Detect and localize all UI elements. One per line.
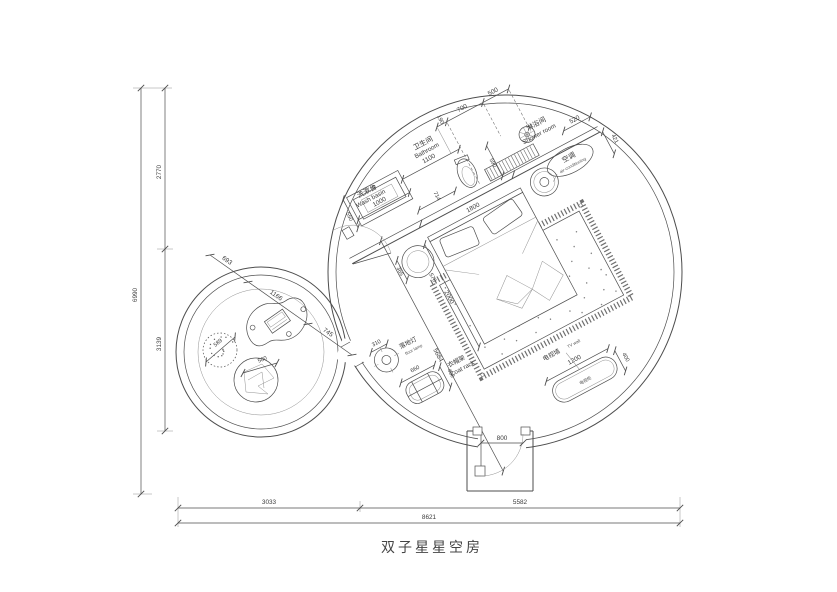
dim-3033: 3033 <box>262 499 277 506</box>
svg-text:800: 800 <box>497 435 508 442</box>
tv-label-cn: 电视墙 <box>541 347 561 363</box>
dim-714: 714 <box>412 182 459 215</box>
dim-3139: 3139 <box>156 336 163 351</box>
door-post <box>473 427 482 435</box>
dim-tv: 1200 400 电视墙 TV wall <box>532 320 635 411</box>
tv-label-en: TV wall <box>566 338 581 349</box>
coat-rack <box>403 369 447 407</box>
dim-590: 590 <box>480 142 507 182</box>
dim-693: 693 <box>220 255 233 267</box>
svg-text:5684: 5684 <box>431 347 444 363</box>
shower-glass-line <box>484 104 501 136</box>
dim-2770: 2770 <box>156 164 163 179</box>
dim-745: 745 <box>321 327 334 339</box>
main-room-interior: 空调 air-conditioning <box>284 46 732 504</box>
lounge-room-inner-wall <box>184 275 338 429</box>
drawing-title: 双子星星空房 <box>381 540 483 556</box>
dim-1166: 1166 <box>268 289 284 303</box>
dim-top-chain: 190 700 500 <box>430 79 526 155</box>
svg-text:400: 400 <box>620 352 630 363</box>
dim-700: 700 <box>456 103 469 114</box>
floor-plan: 空调 air-conditioning <box>0 0 837 592</box>
toilet <box>452 154 481 190</box>
shower-labels: 淋浴间 Shower room <box>516 112 557 146</box>
dim-5582: 5582 <box>513 499 528 506</box>
dim-chair: 500 <box>239 356 281 377</box>
dim-500: 500 <box>487 86 500 97</box>
tv-cabinet-label: 电视柜 <box>578 374 593 387</box>
lounge-room-outer-wall <box>176 267 346 437</box>
door-post <box>521 427 530 435</box>
svg-text:550: 550 <box>344 211 354 222</box>
ac-label: 空调 air-conditioning <box>542 138 598 184</box>
svg-text:1200: 1200 <box>567 354 583 367</box>
bathroom-labels: 卫生间 Bathroom 1100 <box>387 124 463 184</box>
dim-stool: 365 570 <box>390 245 437 295</box>
dim-421: 421 <box>598 124 624 158</box>
shower-glass-line <box>448 124 480 184</box>
dim-lamp: 310 落地灯 floor lamp <box>364 322 423 371</box>
floor-plan-canvas: 空调 air-conditioning <box>0 0 837 592</box>
dim-8621: 8621 <box>422 514 437 521</box>
dim-left-side: 2770 3139 6990 <box>132 85 173 497</box>
dim-pouf: 589 <box>201 332 239 366</box>
svg-text:500: 500 <box>257 356 268 365</box>
svg-text:714: 714 <box>432 191 442 202</box>
dim-6990: 6990 <box>132 287 139 302</box>
dim-bottom: 3033 5582 8621 <box>175 497 683 527</box>
door-leaf-end <box>475 466 485 476</box>
